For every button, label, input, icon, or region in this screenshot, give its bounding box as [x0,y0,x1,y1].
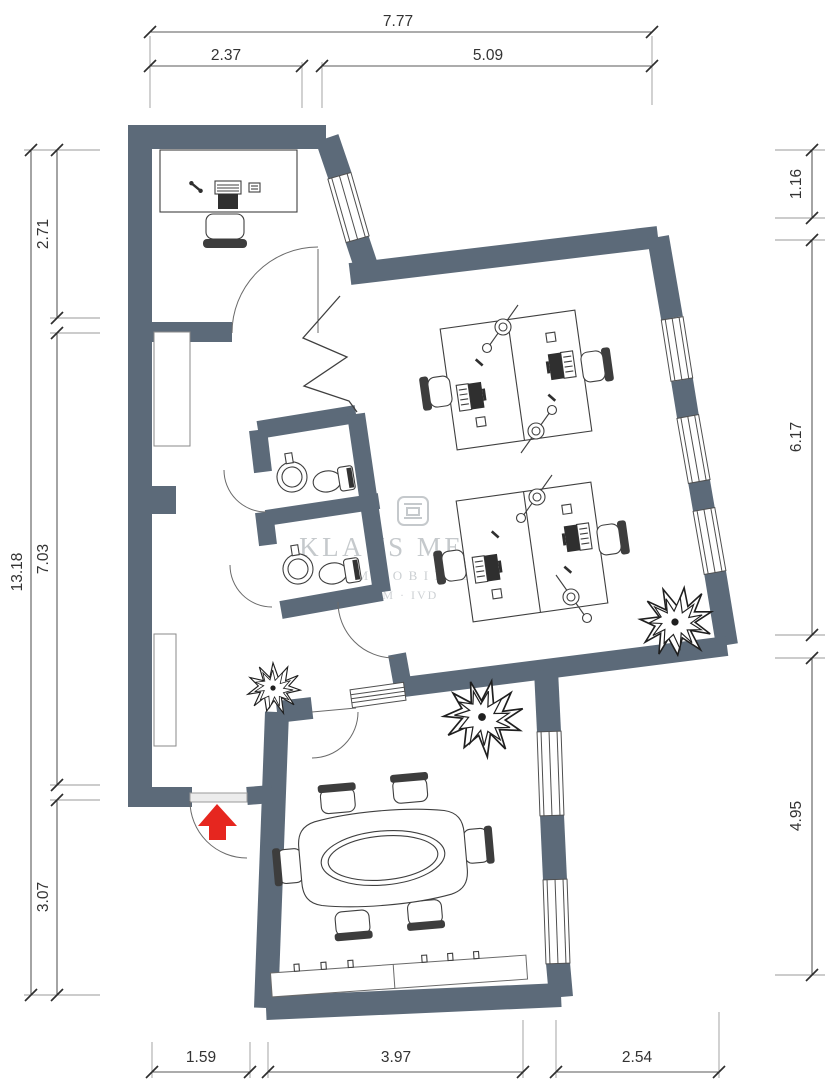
dim-bottom-seg3: 2.54 [622,1049,653,1066]
workstation-group-1 [419,305,614,453]
conference-chair-icon [463,825,495,865]
dim-left-seg1: 2.71 [35,219,52,249]
door-arc-icon [232,247,318,333]
door-arc-icon [338,602,394,658]
dim-left-total: 13.18 [9,553,26,592]
dim-bottom-seg2: 3.97 [381,1049,411,1066]
door-arc-icon [224,470,266,512]
phone-icon [476,417,486,427]
window-icon [661,317,692,382]
window-icon [693,508,726,575]
office-chair-icon [203,214,247,248]
hall-cabinet [154,634,176,746]
door-arc-icon [230,565,272,607]
window-icon [350,682,406,707]
conference-chair-icon [317,782,357,814]
window-icon [543,879,570,964]
dim-right-seg3: 4.95 [788,801,805,831]
floor-plan-page: KLAUS MEYER IMMOBILIEN BDM · IVD [0,0,830,1080]
phone-icon [562,504,572,514]
dim-right-seg2: 6.17 [788,422,805,452]
dim-top-seg1: 2.37 [211,47,241,64]
entrance-arrow-icon [198,804,237,840]
office-chair-icon [433,547,467,585]
window-icon [537,731,564,816]
office-chair-icon [596,520,630,558]
office1-desk-set [160,150,297,248]
break-line [303,296,357,412]
office-chair-icon [419,373,453,411]
conference-chair-icon [405,899,445,931]
dim-top-seg2: 5.09 [473,47,503,64]
window-icon [677,415,710,484]
wall-office-north [350,237,658,274]
toilet-icon [311,465,355,495]
entrance-door-leaf [190,793,247,802]
dim-right-seg1: 1.16 [788,169,805,199]
floor-plan-drawing: KLAUS MEYER IMMOBILIEN BDM · IVD [0,0,830,1080]
monitor-keyboard-icon [215,181,241,209]
conference-set [266,767,500,947]
desk-accessory [249,183,260,192]
wall-meeting-south [266,995,561,1008]
wall-pier [128,486,176,514]
workstation-group-2 [433,475,630,623]
office-chair-icon [580,347,614,385]
brand-logo-icon [398,497,428,525]
washbasin-icon [273,451,309,494]
phone-icon [492,589,502,599]
dim-bottom-seg1: 1.59 [186,1049,216,1066]
phone-icon [546,332,556,342]
dim-left-seg3: 3.07 [35,882,52,912]
conference-chair-icon [333,909,373,941]
conference-chair-icon [390,772,430,804]
dim-top-total: 7.77 [383,13,413,30]
door-arc-icon [312,712,358,758]
hall-cabinet [154,332,190,446]
window-icon [328,172,369,242]
dim-left-seg2: 7.03 [35,544,52,574]
